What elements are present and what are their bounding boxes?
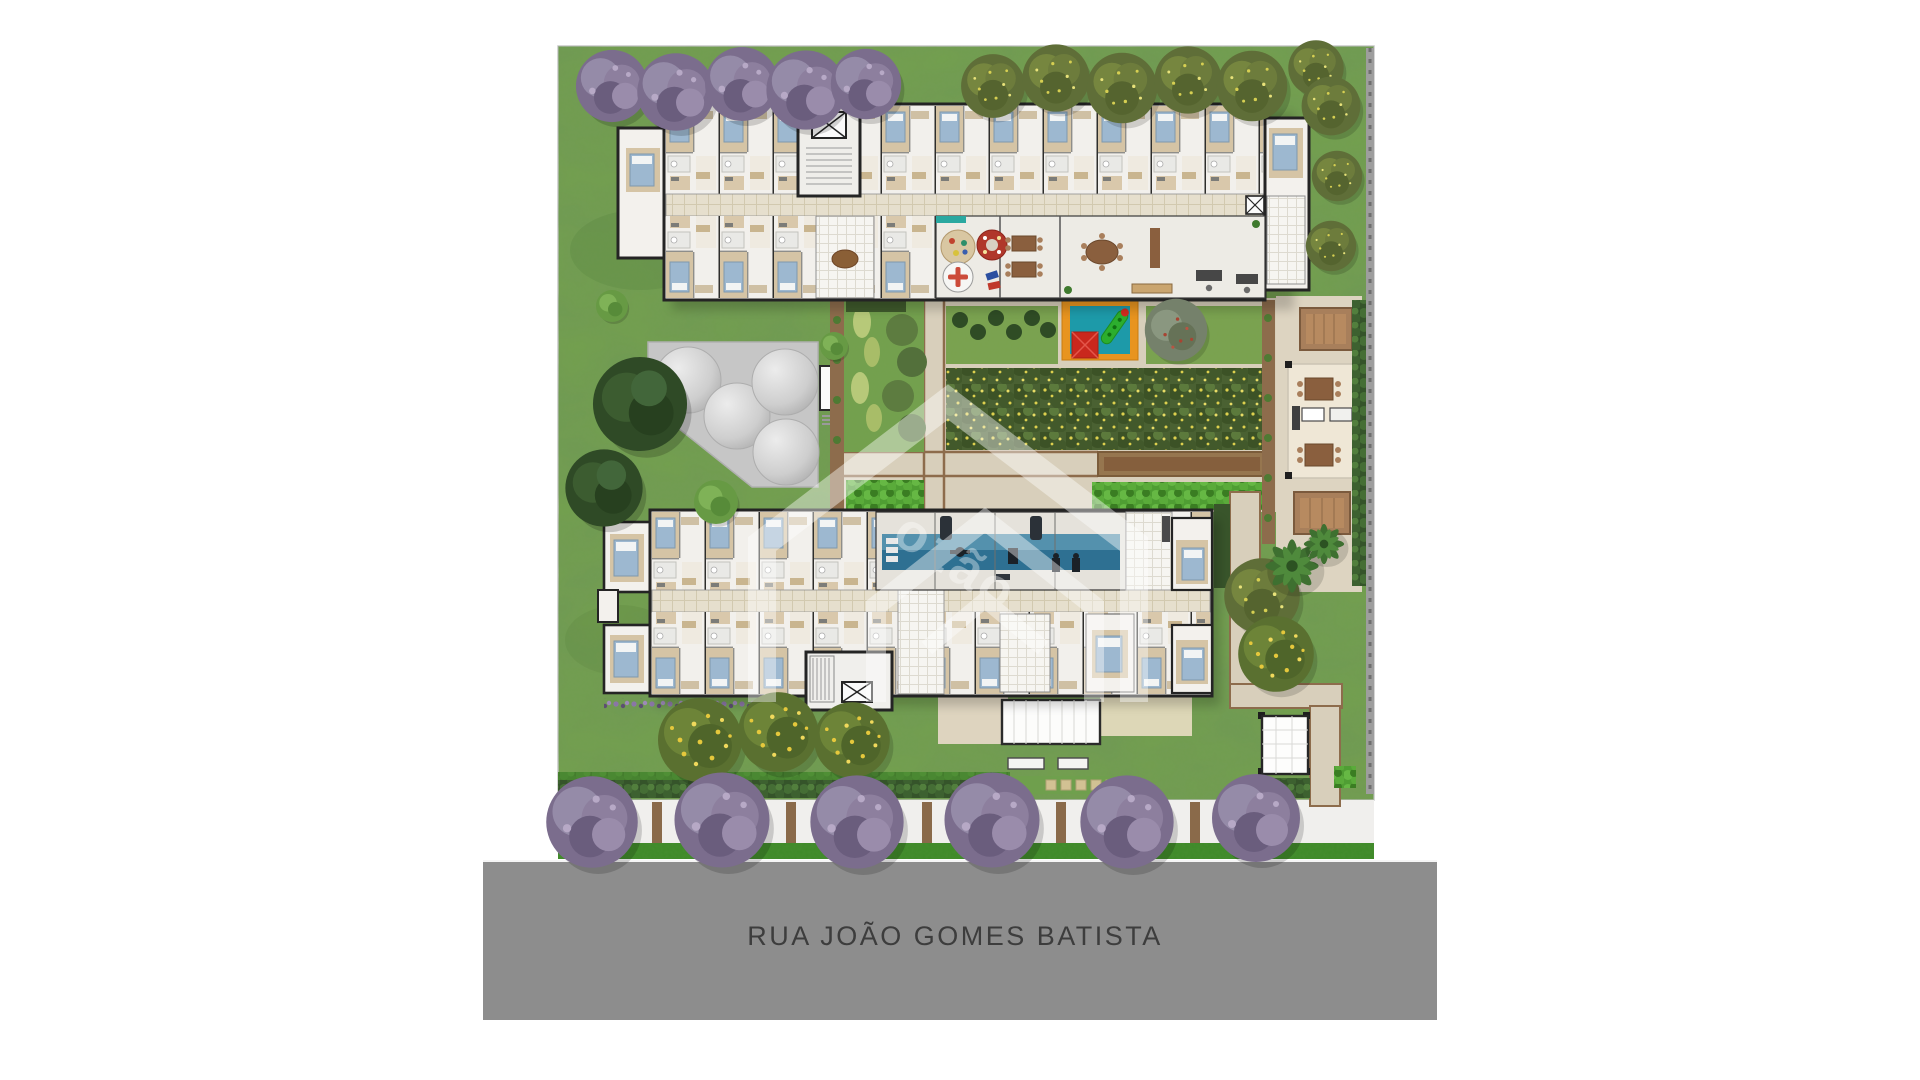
- desk: [1236, 274, 1258, 284]
- bench: [1058, 758, 1088, 769]
- bbq-counter: [1292, 406, 1300, 430]
- bbq-pavilion: [1285, 361, 1359, 479]
- corridor: [666, 194, 1263, 216]
- sofa: [1132, 284, 1172, 293]
- picnic-table: [1305, 378, 1333, 400]
- grill: [1302, 408, 1324, 421]
- desk: [1196, 270, 1222, 281]
- street-name-label: RUA JOÃO GOMES BATISTA: [747, 920, 1163, 951]
- teal-accent: [936, 216, 966, 223]
- lobby-table: [832, 250, 858, 268]
- gatehouse: [1258, 712, 1310, 775]
- street: RUA JOÃO GOMES BATISTA: [483, 860, 1437, 1020]
- sideboard: [1150, 228, 1160, 268]
- planter-strip: [1262, 300, 1275, 544]
- tree-pit-divider: [786, 802, 796, 848]
- water-tank: [752, 349, 818, 415]
- tree-pit-divider: [922, 802, 932, 848]
- tree-pit-divider: [1056, 802, 1066, 848]
- building-north: [618, 96, 1309, 310]
- picnic-table: [1305, 444, 1333, 466]
- boundary-hedge: [1352, 300, 1368, 586]
- tree-pit-divider: [1190, 802, 1200, 848]
- entry-canopy: [1002, 700, 1100, 744]
- water-tank: [753, 419, 819, 485]
- entry-walk: [1310, 706, 1340, 806]
- kitchen-counter: [1162, 516, 1170, 542]
- utility-notch: [598, 590, 618, 622]
- site-plan-svg: RUA JOÃO GOMES BATISTA: [0, 0, 1920, 1080]
- grill: [1330, 408, 1352, 421]
- end-unit-west: [618, 128, 666, 258]
- planter-soil: [1104, 457, 1260, 471]
- treadmill: [1030, 516, 1042, 540]
- pergola-deck-top: [1300, 308, 1352, 350]
- hedge: [1334, 766, 1356, 788]
- amenity-rooms: [936, 216, 1265, 298]
- bench: [1008, 758, 1044, 769]
- play-pyramid: [1072, 332, 1098, 358]
- tree-pit-divider: [652, 802, 662, 848]
- site-plan-canvas: RUA JOÃO GOMES BATISTA: [0, 0, 1920, 1080]
